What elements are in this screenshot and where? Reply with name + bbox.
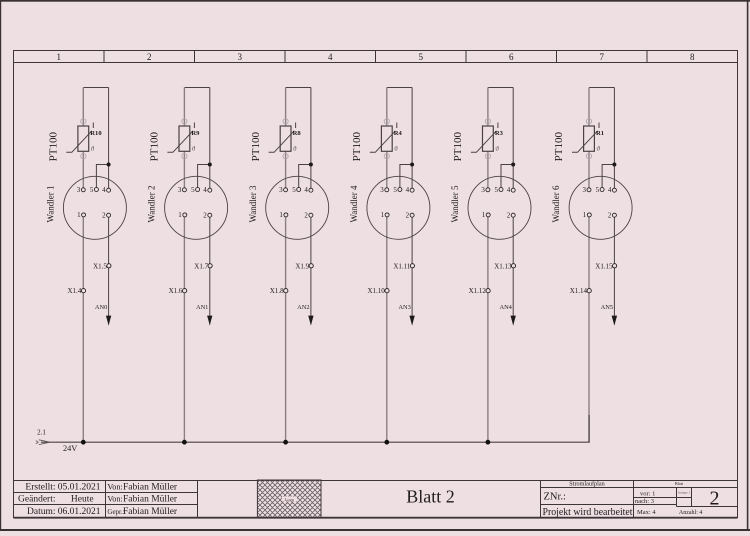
- svg-text:X1.6: X1.6: [169, 287, 183, 295]
- svg-text:R1: R1: [596, 130, 604, 137]
- svg-text:AN0: AN0: [95, 304, 107, 311]
- svg-text:6: 6: [509, 52, 514, 62]
- svg-text:ZNr.:: ZNr.:: [544, 491, 567, 502]
- svg-text:2: 2: [304, 211, 308, 219]
- svg-text:2.1: 2.1: [37, 429, 46, 437]
- svg-text:5: 5: [393, 186, 397, 194]
- svg-text:R10: R10: [90, 130, 102, 137]
- svg-text:Anzahl: 4: Anzahl: 4: [679, 510, 703, 516]
- svg-text:Geändert:: Geändert:: [18, 495, 55, 505]
- svg-text:3: 3: [481, 186, 485, 194]
- svg-text:X1.7: X1.7: [194, 262, 208, 270]
- svg-text:Logo: Logo: [284, 497, 294, 502]
- svg-text:Von:: Von:: [107, 483, 122, 492]
- svg-text:4: 4: [507, 186, 511, 194]
- svg-text:3: 3: [380, 186, 384, 194]
- svg-text:X1.10: X1.10: [367, 287, 385, 295]
- svg-text:4: 4: [102, 186, 106, 194]
- svg-text:1: 1: [77, 211, 81, 219]
- svg-text:Wandler 2: Wandler 2: [147, 185, 157, 222]
- svg-text:Blatt: Blatt: [675, 481, 684, 486]
- svg-text:2: 2: [406, 211, 410, 219]
- svg-text:Wandler 6: Wandler 6: [551, 185, 561, 223]
- svg-text:PT100: PT100: [48, 132, 60, 162]
- svg-text:8: 8: [690, 52, 695, 62]
- svg-text:Heute: Heute: [71, 495, 94, 505]
- svg-text:X1.12: X1.12: [469, 287, 487, 295]
- svg-text:Datum:: Datum:: [27, 507, 56, 517]
- svg-text:3: 3: [77, 186, 81, 194]
- svg-text:Fabian Müller: Fabian Müller: [123, 507, 178, 517]
- svg-text:AN4: AN4: [499, 304, 512, 311]
- svg-text:5: 5: [90, 186, 94, 194]
- svg-text:R4: R4: [394, 130, 403, 137]
- svg-text:Wandler 5: Wandler 5: [450, 185, 460, 223]
- svg-text:3: 3: [583, 186, 587, 194]
- svg-text:X1.11: X1.11: [393, 262, 411, 270]
- svg-text:3: 3: [178, 186, 182, 194]
- svg-text:3: 3: [238, 52, 243, 62]
- svg-text:Wandler 4: Wandler 4: [349, 185, 359, 223]
- svg-text:3: 3: [279, 186, 283, 194]
- svg-text:R3: R3: [495, 130, 504, 137]
- svg-text:05.01.2021: 05.01.2021: [58, 483, 101, 493]
- svg-text:Wandler 3: Wandler 3: [248, 185, 258, 223]
- svg-text:X1.13: X1.13: [494, 262, 512, 270]
- svg-text:R8: R8: [293, 130, 302, 137]
- svg-text:Stromlaufplan: Stromlaufplan: [569, 480, 604, 487]
- svg-text:2: 2: [710, 488, 720, 510]
- svg-text:Fabian Müller: Fabian Müller: [123, 495, 178, 505]
- svg-text:Projekt wird bearbeitet: Projekt wird bearbeitet: [543, 506, 633, 518]
- svg-text:5: 5: [495, 186, 499, 194]
- svg-text:2: 2: [147, 52, 152, 62]
- svg-text:4: 4: [304, 186, 308, 194]
- svg-text:X1.9: X1.9: [295, 262, 309, 270]
- svg-text:PT100: PT100: [553, 132, 565, 162]
- svg-text:2: 2: [507, 211, 511, 219]
- svg-text:Max: 4: Max: 4: [637, 509, 656, 516]
- svg-text:06.01.2021: 06.01.2021: [58, 507, 101, 517]
- svg-text:5: 5: [596, 186, 600, 194]
- svg-text:5: 5: [292, 186, 296, 194]
- svg-text:AN2: AN2: [297, 304, 309, 311]
- svg-text:PT100: PT100: [149, 132, 161, 162]
- svg-text:4: 4: [406, 186, 410, 194]
- svg-text:2: 2: [102, 211, 106, 219]
- svg-text:2: 2: [203, 211, 207, 219]
- svg-text:1: 1: [482, 211, 486, 219]
- svg-text:X1.8: X1.8: [270, 287, 284, 295]
- svg-text:X1.5: X1.5: [93, 262, 107, 270]
- svg-text:Fabian Müller: Fabian Müller: [123, 483, 178, 493]
- svg-text:Von:: Von:: [107, 495, 122, 504]
- svg-text:AN1: AN1: [196, 304, 208, 311]
- svg-text:5: 5: [419, 52, 424, 62]
- svg-text:5: 5: [191, 186, 195, 194]
- svg-text:X1.4: X1.4: [67, 287, 81, 295]
- svg-text:nach: 3: nach: 3: [635, 498, 654, 505]
- svg-text:Blatt 2: Blatt 2: [406, 487, 455, 507]
- svg-text:R9: R9: [191, 130, 200, 137]
- svg-text:PT100: PT100: [351, 132, 363, 162]
- svg-text:1: 1: [279, 211, 283, 219]
- svg-text:X1.14: X1.14: [570, 287, 588, 295]
- svg-text:4: 4: [203, 186, 207, 194]
- svg-text:PT100: PT100: [452, 132, 464, 162]
- svg-text:Anlage 1: Anlage 1: [678, 491, 691, 495]
- svg-text:vor: 1: vor: 1: [640, 490, 655, 497]
- svg-text:AN5: AN5: [601, 304, 613, 311]
- svg-text:AN3: AN3: [398, 304, 410, 311]
- svg-text:1: 1: [57, 52, 62, 62]
- svg-text:X1.15: X1.15: [595, 262, 613, 270]
- svg-text:24V: 24V: [63, 444, 77, 453]
- svg-text:2: 2: [608, 211, 612, 219]
- svg-text:1: 1: [381, 211, 385, 219]
- svg-text:1: 1: [178, 211, 182, 219]
- svg-text:1: 1: [583, 211, 587, 219]
- svg-text:PT100: PT100: [250, 132, 262, 162]
- svg-text:Wandler 1: Wandler 1: [46, 185, 56, 222]
- svg-text:7: 7: [600, 52, 605, 62]
- svg-text:4: 4: [328, 52, 333, 62]
- svg-text:Erstellt:: Erstellt:: [25, 483, 55, 493]
- svg-text:4: 4: [608, 186, 612, 194]
